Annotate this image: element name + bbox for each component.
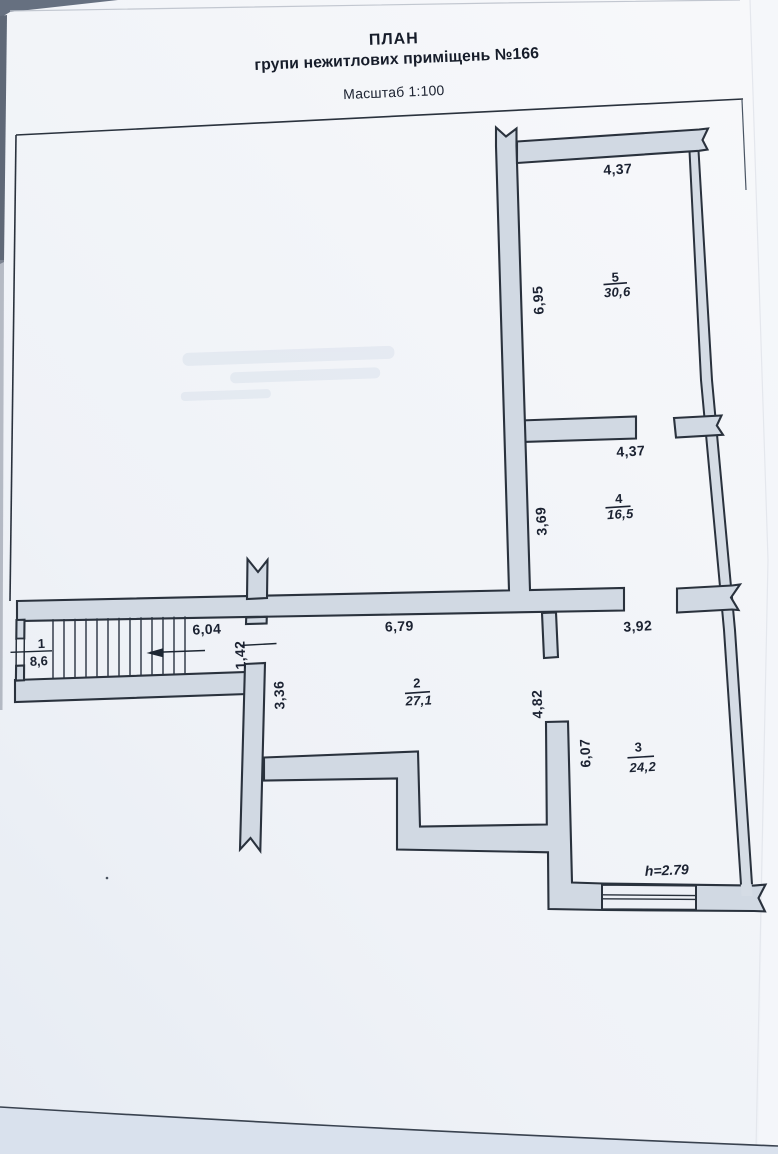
svg-text:6,07: 6,07 bbox=[577, 738, 594, 767]
svg-text:3: 3 bbox=[634, 739, 642, 754]
svg-text:4,37: 4,37 bbox=[616, 442, 646, 459]
svg-text:4,82: 4,82 bbox=[529, 689, 546, 718]
svg-text:6,79: 6,79 bbox=[385, 617, 415, 634]
svg-text:24,2: 24,2 bbox=[628, 759, 657, 775]
svg-text:1: 1 bbox=[37, 636, 45, 651]
svg-text:ПЛАН: ПЛАН bbox=[369, 30, 419, 49]
svg-text:3,36: 3,36 bbox=[271, 680, 288, 709]
svg-text:1,42: 1,42 bbox=[232, 640, 249, 669]
svg-text:2: 2 bbox=[413, 675, 421, 690]
svg-text:4,37: 4,37 bbox=[603, 160, 633, 177]
svg-text:h=2.79: h=2.79 bbox=[644, 861, 689, 879]
svg-text:5: 5 bbox=[611, 269, 619, 284]
svg-text:8,6: 8,6 bbox=[30, 653, 49, 669]
svg-text:16,5: 16,5 bbox=[607, 506, 635, 522]
svg-text:6,95: 6,95 bbox=[529, 285, 546, 315]
svg-text:27,1: 27,1 bbox=[404, 692, 432, 708]
svg-text:30,6: 30,6 bbox=[604, 284, 632, 300]
svg-text:3,92: 3,92 bbox=[623, 617, 653, 634]
svg-text:3,69: 3,69 bbox=[532, 506, 549, 536]
svg-text:6,04: 6,04 bbox=[192, 620, 222, 637]
